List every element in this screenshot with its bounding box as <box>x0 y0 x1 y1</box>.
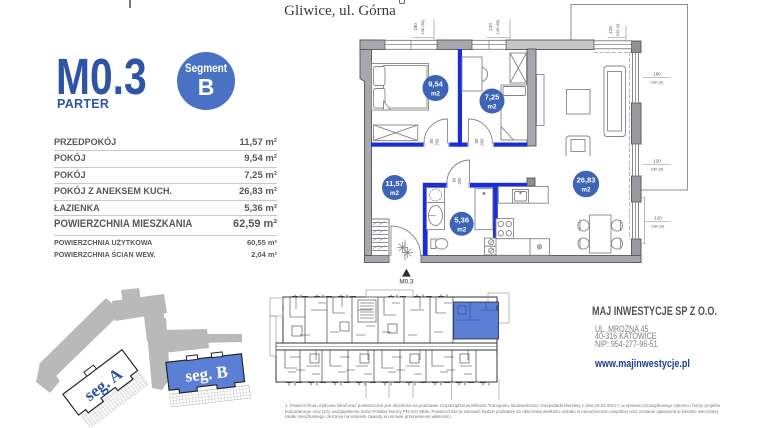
svg-text:145 (85): 145 (85) <box>495 19 500 35</box>
svg-text:9,54: 9,54 <box>428 80 443 89</box>
svg-text:m2: m2 <box>431 91 441 98</box>
svg-text:230 (0): 230 (0) <box>652 224 665 229</box>
svg-text:145 (85): 145 (85) <box>420 19 425 35</box>
svg-text:120: 120 <box>654 216 662 221</box>
svg-text:5,36: 5,36 <box>454 215 469 224</box>
svg-text:200: 200 <box>435 138 440 146</box>
svg-text:120: 120 <box>608 26 613 34</box>
svg-text:90: 90 <box>452 177 457 182</box>
svg-text:200: 200 <box>457 177 462 185</box>
svg-text:m2: m2 <box>582 187 592 194</box>
svg-text:200: 200 <box>480 138 485 146</box>
svg-text:80: 80 <box>429 138 434 143</box>
svg-text:M0.3: M0.3 <box>399 279 413 286</box>
svg-text:m2: m2 <box>390 190 400 197</box>
svg-text:180: 180 <box>413 23 418 31</box>
svg-text:11,57: 11,57 <box>385 179 403 188</box>
svg-text:m2: m2 <box>488 104 498 111</box>
svg-text:230 (0): 230 (0) <box>615 23 620 36</box>
svg-text:120: 120 <box>488 23 493 31</box>
svg-text:80: 80 <box>474 138 479 143</box>
svg-text:26,83: 26,83 <box>577 176 596 185</box>
svg-text:230 (0): 230 (0) <box>651 167 664 172</box>
svg-text:180: 180 <box>653 72 661 77</box>
svg-text:7,25: 7,25 <box>485 93 500 102</box>
svg-text:120: 120 <box>653 159 661 164</box>
svg-text:m2: m2 <box>457 226 467 233</box>
svg-text:230 (0): 230 (0) <box>651 80 664 85</box>
